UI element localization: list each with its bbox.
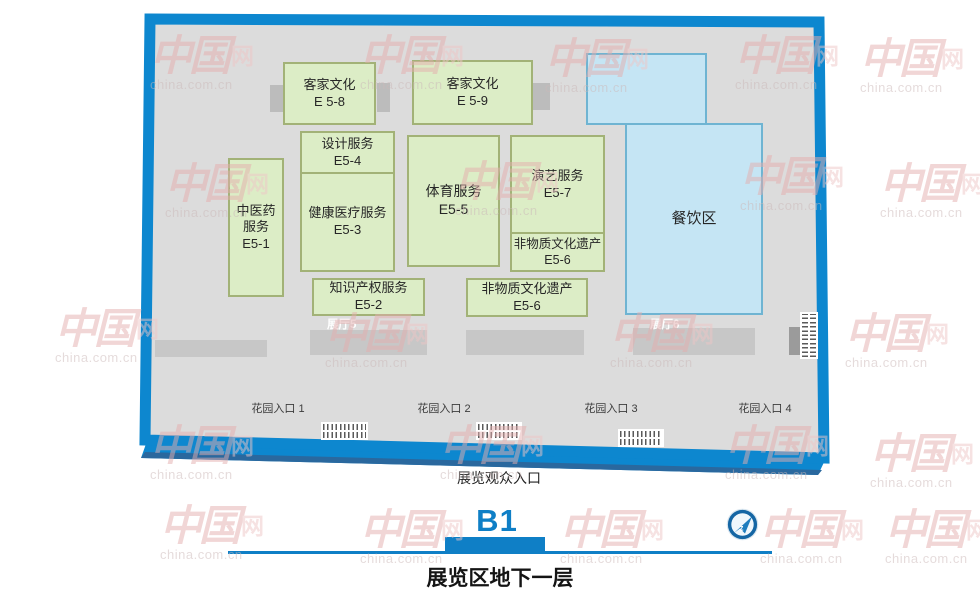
hall-wall-strip xyxy=(310,330,427,355)
booth-code: E5-3 xyxy=(334,222,361,239)
booth-name: 健康医疗服务 xyxy=(308,205,386,222)
legend-bar xyxy=(445,537,545,552)
stairs-icon xyxy=(476,422,522,440)
stairs-run xyxy=(478,432,520,438)
stairs-icon xyxy=(800,312,818,359)
dining-area: 餐饮区 xyxy=(625,123,763,315)
booth-code: E5-6 xyxy=(513,298,540,315)
booth-code: E5-4 xyxy=(334,153,361,170)
floor-plan-page: 客家文化 E 5-8 客家文化 E 5-9 中医药 服务 E5-1 设计服务 E… xyxy=(0,0,980,600)
hall-wall-strip xyxy=(466,330,584,355)
svg-text:z: z xyxy=(740,524,744,533)
door-tab xyxy=(270,85,284,112)
booth-e5-5: 体育服务 E5-5 xyxy=(407,135,500,267)
booth-name: 演艺服务 xyxy=(531,168,583,185)
hall-label-5: 展厅5 xyxy=(327,316,356,332)
booth-code: E5-2 xyxy=(355,297,382,314)
stairs-run xyxy=(323,424,366,430)
booth-name: 非物质文化遗产 xyxy=(481,281,572,298)
booth-name: 设计服务 xyxy=(321,136,373,153)
stairs-run xyxy=(323,432,366,438)
booth-e5-6-lower: 非物质文化遗产 E5-6 xyxy=(466,278,588,317)
booth-e5-2: 知识产权服务 E5-2 xyxy=(312,278,425,316)
booth-code: E5-7 xyxy=(544,185,571,202)
booth-name: 客家文化 xyxy=(303,77,355,94)
door-tab xyxy=(377,83,390,112)
booth-e5-6-upper: 非物质文化遗产 E5-6 xyxy=(510,232,605,272)
booth-name: 客家文化 xyxy=(446,76,498,93)
booth-name: 体育服务 xyxy=(426,183,482,201)
booth-e5-4: 设计服务 E5-4 xyxy=(300,131,395,174)
hall-wall-strip xyxy=(633,328,755,355)
stairs-run xyxy=(810,314,816,357)
hall-wall-strip xyxy=(155,340,267,357)
hall-label-6: 展厅6 xyxy=(650,316,679,332)
stairs-icon xyxy=(321,422,368,440)
garden-entrance-2-label: 花园入口 2 xyxy=(417,400,470,416)
stairs-run xyxy=(620,431,662,437)
booth-code: E 5-9 xyxy=(457,93,488,110)
stairs-run xyxy=(802,314,808,357)
floor-code: B1 xyxy=(476,503,518,539)
door-tab xyxy=(533,83,550,110)
booth-code: E5-1 xyxy=(242,236,269,253)
garden-entrance-3-label: 花园入口 3 xyxy=(584,400,637,416)
booth-code: E5-5 xyxy=(439,201,469,219)
booth-e5-3: 健康医疗服务 E5-3 xyxy=(300,172,395,272)
booth-name: 非物质文化遗产 xyxy=(514,236,602,252)
booth-name: 餐饮区 xyxy=(671,209,716,228)
visitor-entrance-label: 展览观众入口 xyxy=(457,468,541,488)
booth-e5-1: 中医药 服务 E5-1 xyxy=(228,158,284,297)
dining-annex-area xyxy=(586,53,707,125)
booth-e5-9: 客家文化 E 5-9 xyxy=(412,60,533,125)
floor-title: 展览区地下一层 xyxy=(427,562,574,592)
booth-code: E5-6 xyxy=(544,252,570,268)
garden-entrance-1-label: 花园入口 1 xyxy=(251,400,304,416)
compass-icon: z xyxy=(726,508,759,541)
booth-e5-7: 演艺服务 E5-7 xyxy=(510,135,605,234)
stairs-run xyxy=(478,424,520,430)
booth-name: 知识产权服务 xyxy=(329,280,407,297)
garden-entrance-4-label: 花园入口 4 xyxy=(738,400,791,416)
booth-e5-8: 客家文化 E 5-8 xyxy=(283,62,376,125)
stairs-icon xyxy=(618,429,664,447)
booth-code: E 5-8 xyxy=(314,94,345,111)
stairs-run xyxy=(620,439,662,445)
booth-name: 中医药 服务 xyxy=(236,203,275,236)
